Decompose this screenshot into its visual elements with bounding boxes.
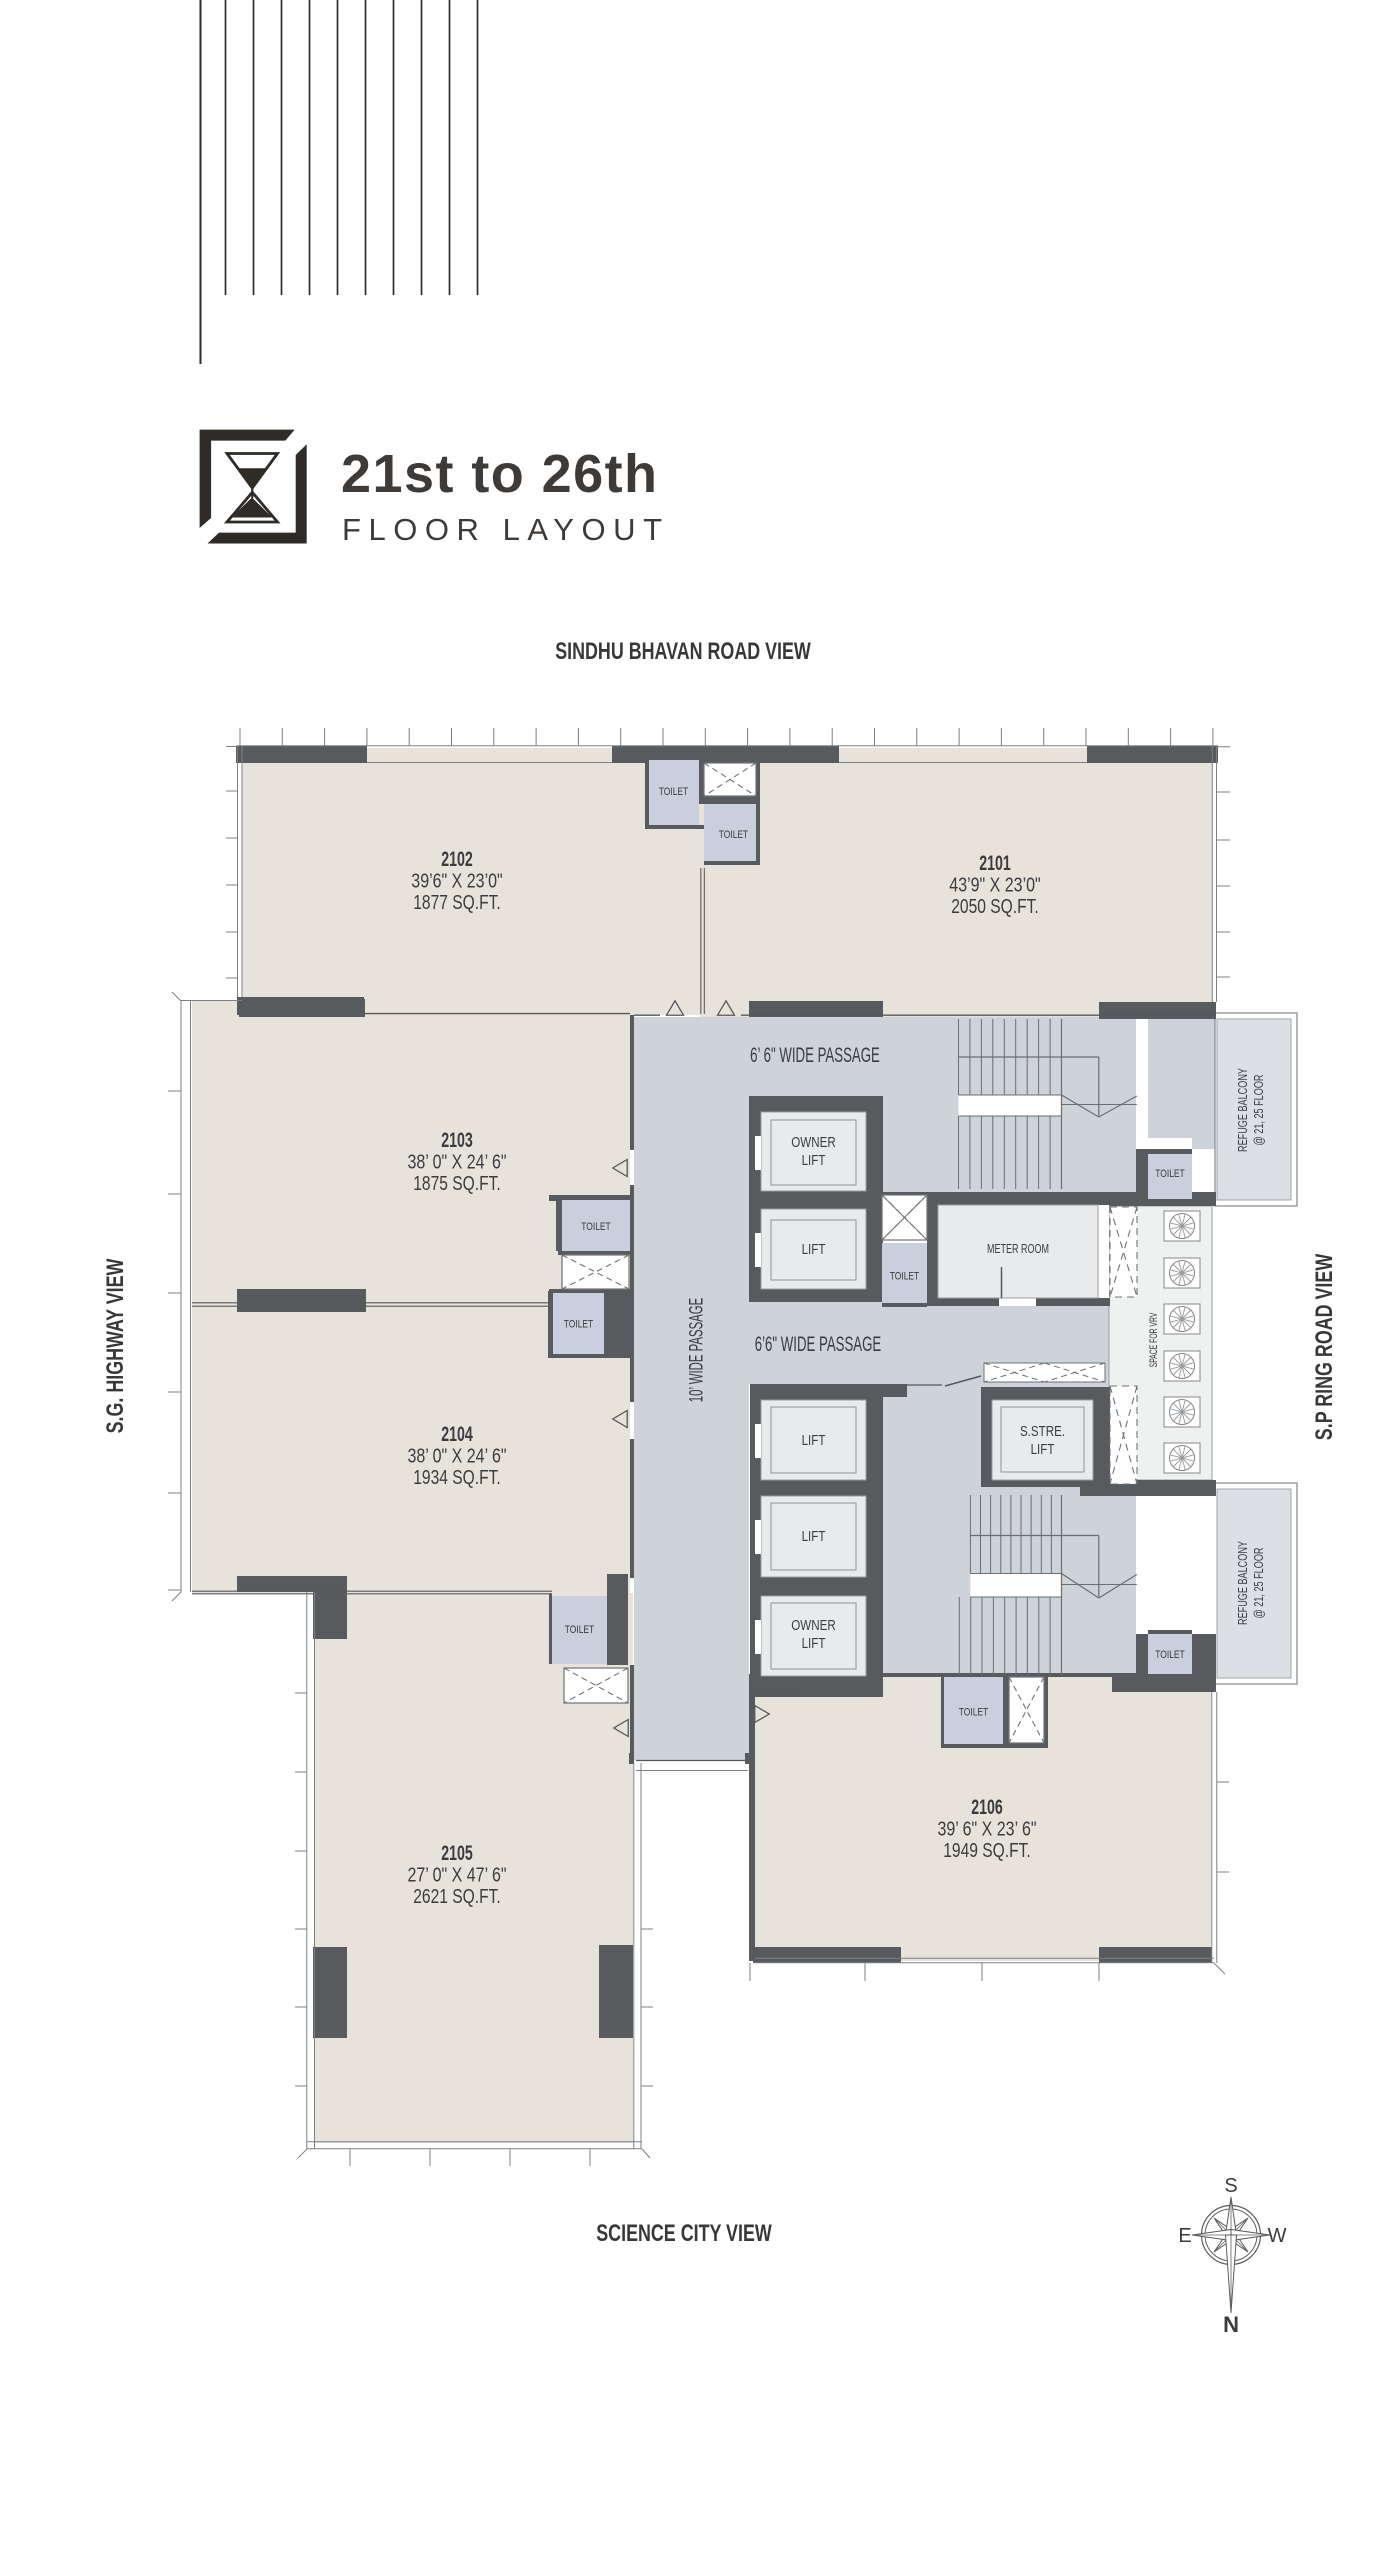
svg-text:27’ 0" X 47’ 6": 27’ 0" X 47’ 6" bbox=[407, 1864, 506, 1886]
svg-text:TOILET: TOILET bbox=[719, 829, 748, 841]
svg-text:LIFT: LIFT bbox=[802, 1152, 826, 1169]
svg-text:1877 SQ.FT.: 1877 SQ.FT. bbox=[413, 891, 501, 913]
svg-text:39’6" X 23’0": 39’6" X 23’0" bbox=[411, 870, 502, 892]
svg-text:1875 SQ.FT.: 1875 SQ.FT. bbox=[413, 1172, 501, 1194]
svg-text:21st to 26th: 21st to 26th bbox=[341, 444, 657, 504]
svg-text:TOILET: TOILET bbox=[564, 1318, 593, 1330]
svg-text:LIFT: LIFT bbox=[802, 1528, 826, 1545]
svg-text:TOILET: TOILET bbox=[1155, 1168, 1184, 1180]
svg-text:S.G. HIGHWAY VIEW: S.G. HIGHWAY VIEW bbox=[101, 1258, 128, 1433]
svg-text:1934 SQ.FT.: 1934 SQ.FT. bbox=[413, 1466, 501, 1488]
svg-text:2103: 2103 bbox=[441, 1128, 473, 1152]
svg-text:SCIENCE CITY VIEW: SCIENCE CITY VIEW bbox=[596, 2219, 772, 2246]
svg-text:TOILET: TOILET bbox=[565, 1624, 594, 1636]
svg-text:2050 SQ.FT.: 2050 SQ.FT. bbox=[951, 895, 1039, 917]
svg-text:FLOOR LAYOUT: FLOOR LAYOUT bbox=[342, 512, 662, 547]
svg-text:@ 21, 25 FLOOR: @ 21, 25 FLOOR bbox=[1253, 1075, 1267, 1146]
svg-text:SINDHU BHAVAN ROAD VIEW: SINDHU BHAVAN ROAD VIEW bbox=[555, 637, 811, 664]
svg-text:10’ WIDE PASSAGE: 10’ WIDE PASSAGE bbox=[687, 1298, 708, 1402]
svg-text:2106: 2106 bbox=[971, 1795, 1003, 1819]
svg-text:6’6" WIDE PASSAGE: 6’6" WIDE PASSAGE bbox=[755, 1332, 881, 1356]
svg-text:LIFT: LIFT bbox=[802, 1635, 826, 1652]
svg-text:LIFT: LIFT bbox=[1031, 1441, 1055, 1458]
svg-text:TOILET: TOILET bbox=[659, 786, 688, 798]
svg-text:@ 21, 25 FLOOR: @ 21, 25 FLOOR bbox=[1253, 1548, 1267, 1619]
svg-text:38’ 0" X 24’ 6": 38’ 0" X 24’ 6" bbox=[407, 1445, 506, 1467]
svg-text:TOILET: TOILET bbox=[959, 1706, 988, 1718]
svg-text:S.P RING ROAD VIEW: S.P RING ROAD VIEW bbox=[1310, 1253, 1337, 1440]
svg-text:TOILET: TOILET bbox=[890, 1270, 919, 1282]
svg-text:E: E bbox=[1178, 2225, 1191, 2247]
svg-text:2101: 2101 bbox=[979, 851, 1011, 875]
svg-text:2104: 2104 bbox=[441, 1422, 473, 1446]
svg-text:38’ 0" X 24’ 6": 38’ 0" X 24’ 6" bbox=[407, 1151, 506, 1173]
svg-text:REFUGE BALCONY: REFUGE BALCONY bbox=[1237, 1541, 1251, 1625]
svg-text:2621 SQ.FT.: 2621 SQ.FT. bbox=[413, 1885, 501, 1907]
svg-text:OWNER: OWNER bbox=[791, 1617, 835, 1634]
svg-text:W: W bbox=[1268, 2225, 1287, 2247]
svg-text:TOILET: TOILET bbox=[1155, 1649, 1184, 1661]
svg-text:2102: 2102 bbox=[441, 847, 473, 871]
svg-text:N: N bbox=[1223, 2312, 1239, 2337]
svg-text:43’9" X 23’0": 43’9" X 23’0" bbox=[949, 874, 1040, 896]
svg-text:6’ 6" WIDE PASSAGE: 6’ 6" WIDE PASSAGE bbox=[750, 1043, 880, 1067]
svg-text:S.STRE.: S.STRE. bbox=[1020, 1423, 1065, 1440]
svg-text:REFUGE BALCONY: REFUGE BALCONY bbox=[1237, 1068, 1251, 1152]
svg-text:LIFT: LIFT bbox=[802, 1432, 826, 1449]
svg-text:39’ 6" X 23’ 6": 39’ 6" X 23’ 6" bbox=[937, 1818, 1036, 1840]
svg-text:TOILET: TOILET bbox=[581, 1221, 610, 1233]
svg-text:METER ROOM: METER ROOM bbox=[987, 1243, 1049, 1257]
svg-text:2105: 2105 bbox=[441, 1841, 473, 1865]
svg-text:OWNER: OWNER bbox=[791, 1134, 835, 1151]
svg-text:LIFT: LIFT bbox=[802, 1241, 826, 1258]
svg-text:SPACE FOR VRV: SPACE FOR VRV bbox=[1147, 1312, 1159, 1367]
svg-text:1949 SQ.FT.: 1949 SQ.FT. bbox=[943, 1839, 1031, 1861]
svg-text:S: S bbox=[1224, 2175, 1237, 2197]
